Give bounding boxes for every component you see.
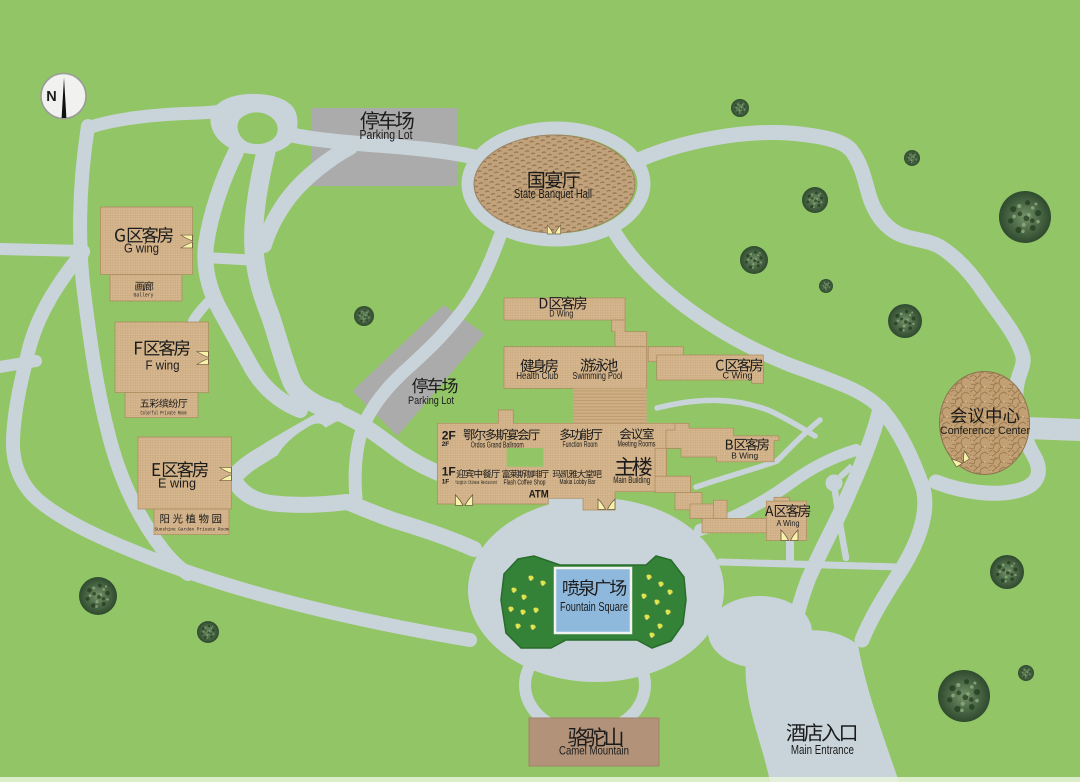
svg-text:Colorful Private Room: Colorful Private Room <box>141 411 187 417</box>
svg-text:Gallery: Gallery <box>134 292 155 299</box>
svg-text:Yingbin Chinese Restaurant: Yingbin Chinese Restaurant <box>455 480 497 486</box>
svg-text:A Wing: A Wing <box>777 519 800 528</box>
svg-text:Function Room: Function Room <box>563 439 598 449</box>
svg-text:Makia Lobby Bar: Makia Lobby Bar <box>560 479 596 486</box>
svg-text:1F: 1F <box>442 464 456 478</box>
svg-text:Camel Mountain: Camel Mountain <box>559 744 629 758</box>
svg-text:Parking Lot: Parking Lot <box>360 128 413 142</box>
svg-text:G wing: G wing <box>124 242 159 256</box>
svg-text:D Wing: D Wing <box>549 308 573 318</box>
svg-text:Ordos Grand Ballroom: Ordos Grand Ballroom <box>471 439 524 449</box>
svg-text:Parking Lot: Parking Lot <box>408 395 454 407</box>
svg-text:F wing: F wing <box>146 359 180 373</box>
svg-text:1F: 1F <box>442 478 450 485</box>
svg-text:Meeting Rooms: Meeting Rooms <box>618 439 656 449</box>
svg-text:Sunshine Garden Private Room: Sunshine Garden Private Room <box>155 527 229 533</box>
svg-text:B Wing: B Wing <box>731 451 758 461</box>
svg-text:Fountain Square: Fountain Square <box>560 600 628 614</box>
svg-text:Main Entrance: Main Entrance <box>791 742 854 757</box>
svg-text:2F: 2F <box>442 441 450 448</box>
svg-text:Health Club: Health Club <box>516 371 558 382</box>
svg-text:State Banquet Hall: State Banquet Hall <box>514 186 592 201</box>
svg-text:ATM: ATM <box>529 489 549 501</box>
svg-text:Conference Center: Conference Center <box>940 425 1030 437</box>
svg-text:Main Building: Main Building <box>613 475 650 485</box>
svg-text:Swimming Pool: Swimming Pool <box>573 371 623 382</box>
svg-text:E wing: E wing <box>158 477 196 491</box>
svg-text:Flash Coffee Shop: Flash Coffee Shop <box>504 480 546 487</box>
svg-text:N: N <box>46 89 56 105</box>
svg-text:C Wing: C Wing <box>723 371 753 381</box>
